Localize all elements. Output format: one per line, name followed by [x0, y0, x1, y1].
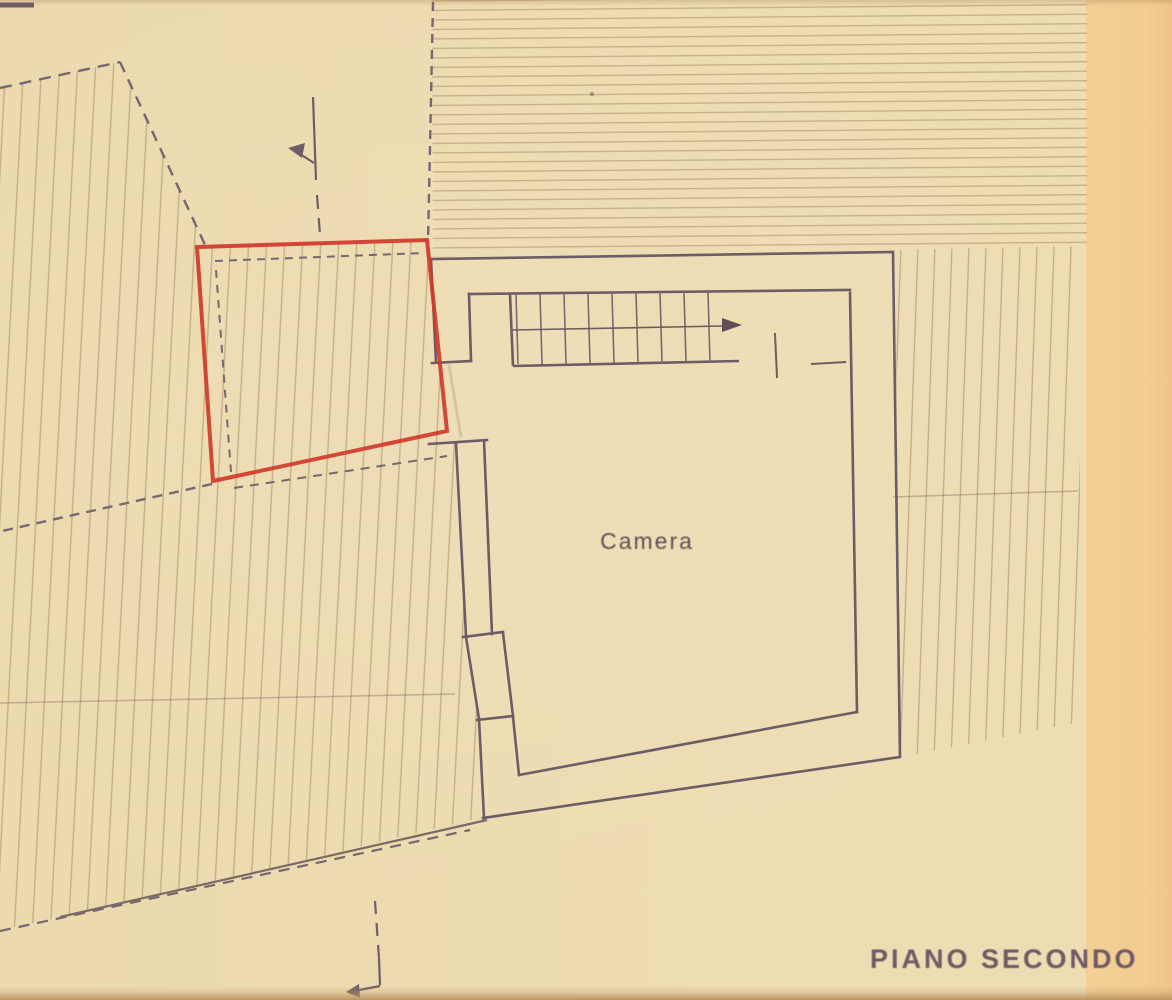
- wall-joint-d: [477, 716, 513, 720]
- inner-wall-right: [850, 293, 857, 712]
- floor-title-label: PIANO SECONDO: [870, 944, 1139, 975]
- inner-wall-left-mid: [484, 441, 492, 634]
- roof-hatch-top-right: [432, 0, 1087, 257]
- section-marker-bottom: [346, 901, 380, 998]
- section-line-top-dashed: [317, 195, 320, 235]
- roof-hatch-right: [895, 246, 1080, 757]
- wall-joint-c: [463, 632, 503, 637]
- inner-wall-left-low: [503, 633, 513, 716]
- section-marker-top: [288, 97, 320, 235]
- staircase: [510, 292, 742, 366]
- inner-wall-bottom: [519, 712, 857, 775]
- door-jamb-tick: [775, 334, 777, 377]
- door-threshold-tick: [812, 362, 845, 364]
- room-label: Camera: [597, 528, 697, 555]
- stair-bottom-wall: [513, 361, 739, 366]
- scan-edge-bottom: [0, 986, 1172, 1000]
- dashed-boundary-vertical: [428, 2, 433, 243]
- roof-hatch-left: [0, 62, 484, 930]
- floorplan-drawing: [0, 0, 1172, 1000]
- stair-walk-line: [512, 326, 723, 330]
- inner-wall-left-corner: [513, 717, 519, 775]
- inner-wall-left-upper: [469, 294, 471, 361]
- green-trace-line: [449, 365, 461, 437]
- ink-speck: [590, 92, 594, 96]
- stair-direction-arrow-icon: [722, 318, 742, 332]
- scanned-floorplan-page: Camera PIANO SECONDO: [0, 0, 1172, 1000]
- section-line-bottom-solid: [379, 958, 380, 985]
- section-line-top-solid: [313, 97, 316, 180]
- section-line-bottom-dashed: [375, 901, 379, 958]
